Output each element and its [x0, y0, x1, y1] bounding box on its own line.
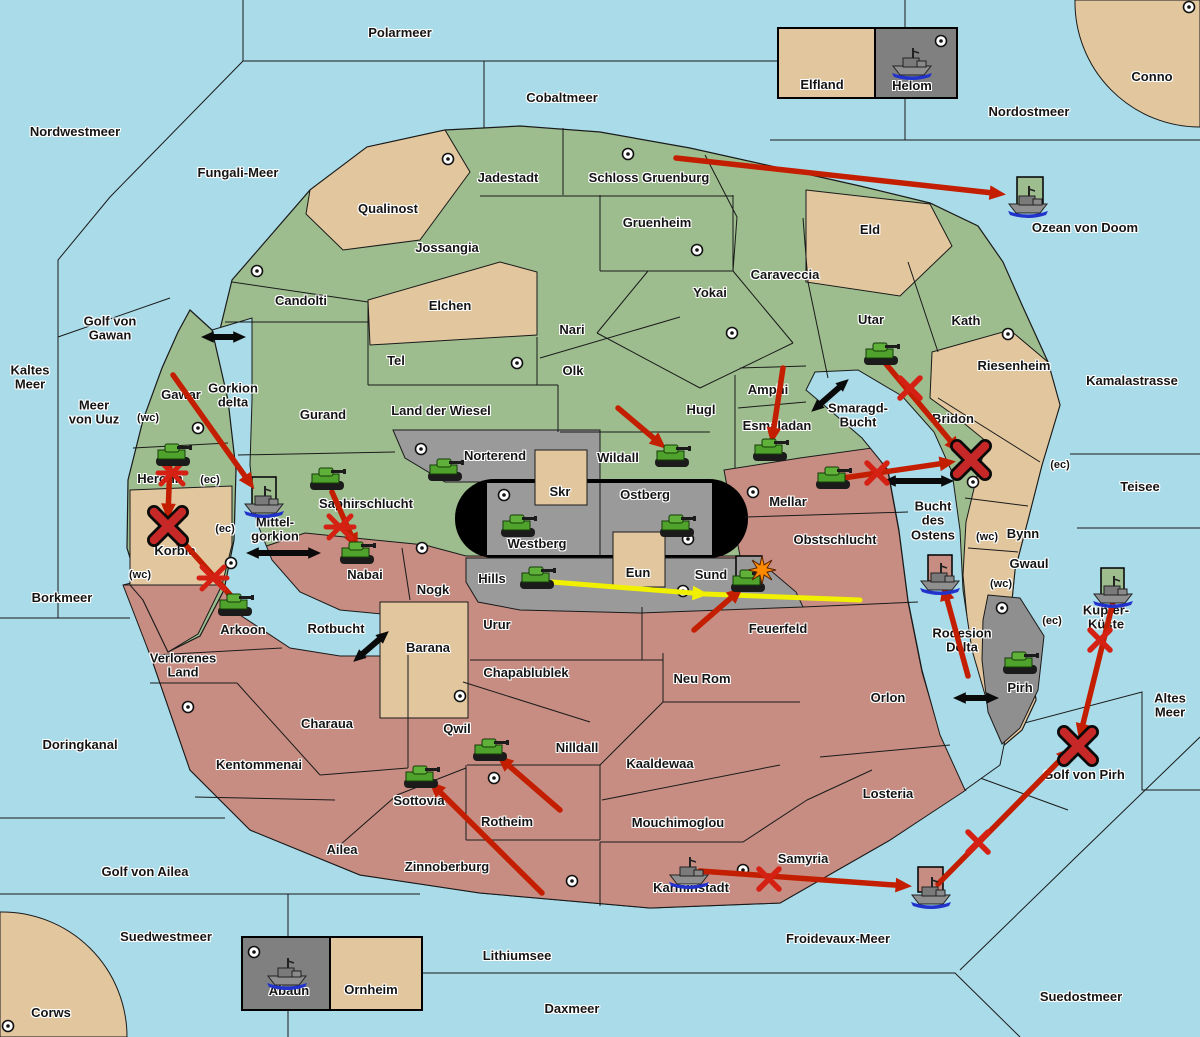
region-label: Hills [478, 572, 505, 586]
repelled-x-mark [968, 832, 988, 852]
region-label: Olk [563, 364, 584, 378]
sea-label: Bucht des Ostens [911, 500, 955, 543]
army-unit[interactable] [753, 439, 789, 461]
region-label: Nabai [347, 568, 382, 582]
sea-label: Rotbucht [307, 622, 364, 636]
region-label: Losteria [863, 787, 914, 801]
battle-star-mark [326, 516, 354, 538]
fleet-unit[interactable] [1008, 186, 1048, 218]
attack-arrow [497, 755, 560, 810]
sea-label: Smaragd- Bucht [828, 402, 888, 431]
strait-double-arrow [246, 547, 321, 558]
map-labels: QualinostJadestadtSchloss GruenburgGruen… [0, 0, 1200, 1037]
supply-center-dot [183, 702, 194, 713]
supply-center-dot [727, 328, 738, 339]
region-label: Mouchimoglou [632, 816, 724, 830]
battle-star-mark [199, 567, 227, 589]
region-label: Gawar [161, 388, 201, 402]
sea-label: Golf von Pirh [1043, 768, 1125, 782]
region-skr [535, 450, 587, 505]
map-units-orders-layer [0, 0, 1200, 1037]
region-label: Bynn [1007, 527, 1040, 541]
coast-label: (wc) [129, 569, 151, 581]
region-label: Hugl [687, 403, 716, 417]
sea-label: Nordostmeer [989, 105, 1070, 119]
sea-label: Doringkanal [42, 738, 117, 752]
supply-center-dot [193, 423, 204, 434]
coast-label: (ec) [1050, 459, 1070, 471]
repelled-x-mark [867, 463, 887, 483]
central-black-stadium [455, 479, 748, 558]
coast-label: (wc) [976, 531, 998, 543]
sea-background [0, 0, 1200, 1037]
region-label: Orlon [871, 691, 906, 705]
fleet-unit[interactable] [892, 48, 932, 80]
region-label: Amphi [748, 383, 788, 397]
region-label: Norterend [464, 449, 526, 463]
coast-label: (ec) [1042, 615, 1062, 627]
region-label: Bridon [932, 412, 974, 426]
region-label: Kath [952, 314, 981, 328]
army-unit[interactable] [218, 594, 254, 616]
game-map[interactable]: QualinostJadestadtSchloss GruenburgGruen… [0, 0, 1200, 1037]
supply-center-dot [748, 487, 759, 498]
region-label: Candolti [275, 294, 327, 308]
region-label: Zinnoberburg [405, 860, 490, 874]
region-label: Helom [892, 79, 932, 93]
attack-arrow [694, 587, 743, 630]
army-unit[interactable] [428, 459, 464, 481]
supply-center-dot [3, 1021, 14, 1032]
region-label: Kaaldewaa [626, 757, 693, 771]
region-label: Neu Rom [673, 672, 730, 686]
region-label: Yokai [693, 286, 727, 300]
army-unit[interactable] [310, 468, 346, 490]
army-unit[interactable] [655, 445, 691, 467]
army-unit[interactable] [156, 444, 192, 466]
support-arrow [705, 594, 860, 600]
southern-region-pink [123, 448, 966, 908]
region-label: Charaua [301, 717, 353, 731]
inset-elfland [778, 28, 875, 98]
fleet-unit[interactable] [669, 857, 709, 889]
sea-label: Kaltes Meer [10, 364, 49, 393]
sea-label: Cobaltmeer [526, 91, 598, 105]
supply-center-dot [1003, 329, 1014, 340]
army-unit[interactable] [473, 739, 509, 761]
region-label: Tel [387, 354, 405, 368]
region-label: Eld [860, 223, 880, 237]
fleet-unit[interactable] [911, 877, 951, 909]
attack-arrow [700, 871, 912, 892]
region-label: Korbia [154, 544, 195, 558]
sea-label: Gorkion delta [208, 382, 258, 411]
region-label: Saphirschlucht [319, 497, 413, 511]
attack-arrow [332, 492, 358, 550]
strait-double-arrow [883, 475, 954, 486]
region-label: Elfland [800, 78, 843, 92]
sea-label: Nordwestmeer [30, 125, 120, 139]
region-label: Elchen [429, 299, 472, 313]
strait-double-arrow [201, 331, 246, 342]
region-label: Schloss Gruenburg [589, 171, 710, 185]
sea-label: Suedostmeer [1040, 990, 1122, 1004]
army-unit[interactable] [520, 567, 556, 589]
supply-center-dot [567, 876, 578, 887]
repelled-x-mark [900, 378, 920, 398]
map-terrain-layer [0, 0, 1200, 1037]
region-label: Nilldall [556, 741, 599, 755]
region-label: Chapablublek [483, 666, 568, 680]
sea-label: Kupfer- Küste [1083, 604, 1129, 633]
region-label: Sottovia [393, 794, 444, 808]
region-label: Utar [858, 313, 884, 327]
region-label: Obstschlucht [793, 533, 876, 547]
sea-label: Mittel- gorkion [251, 516, 299, 545]
region-barana [380, 602, 468, 718]
attack-arrow [767, 368, 783, 444]
sea-label: Lithiumsee [483, 949, 552, 963]
region-label: Land der Wiesel [391, 404, 491, 418]
sea-label: Kamalastrasse [1086, 374, 1178, 388]
region-label: Jadestadt [478, 171, 539, 185]
region-label: Barana [406, 641, 450, 655]
army-unit[interactable] [1003, 652, 1039, 674]
region-eun [613, 532, 665, 587]
sea-label: Fungali-Meer [198, 166, 279, 180]
supply-center-dot [249, 947, 260, 958]
region-label: Eun [626, 566, 651, 580]
region-label: Caraveccia [751, 268, 820, 282]
supply-center-dot [489, 773, 500, 784]
region-label: Nogk [417, 583, 450, 597]
region-label: Riesenheim [978, 359, 1051, 373]
region-label: Ailea [326, 843, 357, 857]
region-label: Conno [1131, 70, 1172, 84]
region-korbia [130, 486, 232, 585]
attack-arrow [843, 457, 956, 478]
supply-center-dot [512, 358, 523, 369]
sea-label: Altes Meer [1154, 692, 1186, 721]
region-label: Urur [483, 618, 510, 632]
sea-label: Ozean von Doom [1032, 221, 1138, 235]
region-label: Kentommenai [216, 758, 302, 772]
army-unit[interactable] [340, 542, 376, 564]
strait-double-arrow [953, 692, 999, 703]
sea-label: Polarmeer [368, 26, 432, 40]
repelled-x-mark [759, 869, 779, 889]
attack-arrow [676, 158, 1006, 200]
attack-arrow [940, 584, 968, 676]
supply-center-dot [226, 558, 237, 569]
region-label: Qualinost [358, 202, 418, 216]
supply-center-dot [416, 444, 427, 455]
supply-center-dot [252, 266, 263, 277]
channel-bucht-des-ostens [806, 370, 1005, 790]
coast-label: (wc) [137, 412, 159, 424]
sea-label: Golf von Gawan [84, 315, 137, 344]
army-unit[interactable] [864, 343, 900, 365]
sea-label: Borkmeer [32, 591, 93, 605]
army-unit[interactable] [731, 570, 767, 592]
region-label: Corws [31, 1006, 71, 1020]
region-label: Wildall [597, 451, 639, 465]
inset-ornheim [330, 937, 422, 1010]
strait-double-arrow [353, 631, 389, 662]
attack-arrow [429, 781, 542, 893]
fleet-unit[interactable] [1093, 576, 1133, 608]
region-qualinost [306, 130, 470, 250]
supply-center-dot [455, 691, 466, 702]
army-unit[interactable] [816, 467, 852, 489]
region-label: Mellar [769, 495, 807, 509]
region-label: Samyria [778, 852, 829, 866]
supply-center-dot [738, 865, 749, 876]
coast-label: (wc) [990, 578, 1012, 590]
east-prong-tan [930, 330, 1060, 746]
supply-center-dot [1184, 2, 1195, 13]
strait-double-arrow [811, 379, 849, 412]
region-elchen [368, 262, 537, 345]
region-label: Jossangia [415, 241, 479, 255]
region-label: Gurand [300, 408, 346, 422]
supply-center-dot [443, 154, 454, 165]
army-unit[interactable] [660, 515, 696, 537]
standoff-x-mark [154, 512, 182, 540]
sea-label: Rodesion Delta [932, 627, 991, 656]
supply-center-dot [417, 543, 428, 554]
attack-arrow [1076, 602, 1113, 740]
standoff-x-mark [957, 446, 985, 474]
supply-center-dot [623, 149, 634, 160]
sea-label: Daxmeer [545, 1002, 600, 1016]
region-label: Sund [695, 568, 728, 582]
region-label: Qwil [443, 722, 470, 736]
coast-label: (ec) [215, 523, 235, 535]
region-label: Rotheim [481, 815, 533, 829]
repelled-x-mark [1090, 630, 1110, 650]
sea-label: Froidevaux-Meer [786, 932, 890, 946]
region-label: Gwaul [1009, 557, 1048, 571]
fleet-unit[interactable] [244, 486, 284, 518]
attack-arrow [938, 747, 1073, 884]
attack-arrow [618, 408, 666, 449]
region-label: Nari [559, 323, 584, 337]
sea-label: Golf von Ailea [102, 865, 189, 879]
region-corws [0, 912, 127, 1037]
region-label: Westberg [508, 537, 567, 551]
attack-arrow [886, 364, 961, 453]
army-unit[interactable] [501, 515, 537, 537]
region-label: Skr [550, 485, 571, 499]
region-label: Esmaladan [743, 419, 812, 433]
fleet-unit[interactable] [267, 958, 307, 990]
region-conno [1075, 0, 1200, 127]
region-label: Arkoon [220, 623, 266, 637]
standoff-x-mark [1064, 732, 1092, 760]
supply-center-dot [692, 245, 703, 256]
army-unit[interactable] [404, 766, 440, 788]
supply-center-dot [968, 477, 979, 488]
supply-center-dot [997, 603, 1008, 614]
sea-label: Teisee [1120, 480, 1160, 494]
region-label: Gruenheim [623, 216, 692, 230]
region-label: Ostberg [620, 488, 670, 502]
attack-arrow [173, 375, 254, 489]
supply-center-dot [499, 490, 510, 501]
support-arrow [552, 582, 709, 600]
coast-label: (ec) [200, 474, 220, 486]
sea-label: Suedwestmeer [120, 930, 212, 944]
region-label: Verlorenes Land [150, 652, 217, 681]
supply-center-dot [678, 586, 689, 597]
fleet-unit[interactable] [920, 563, 960, 595]
sea-border-lines [0, 0, 1200, 1037]
west-strip-south-pink [130, 585, 222, 652]
supply-center-dot [936, 36, 947, 47]
region-norterend [393, 430, 600, 482]
region-label: Pirh [1007, 681, 1032, 695]
attack-arrow [161, 460, 176, 520]
region-label: Ornheim [344, 983, 397, 997]
sea-label: Meer von Uuz [69, 399, 120, 428]
region-label: Feuerfeld [749, 622, 808, 636]
region-label: Heronn [137, 472, 183, 486]
region-eld [806, 190, 952, 296]
